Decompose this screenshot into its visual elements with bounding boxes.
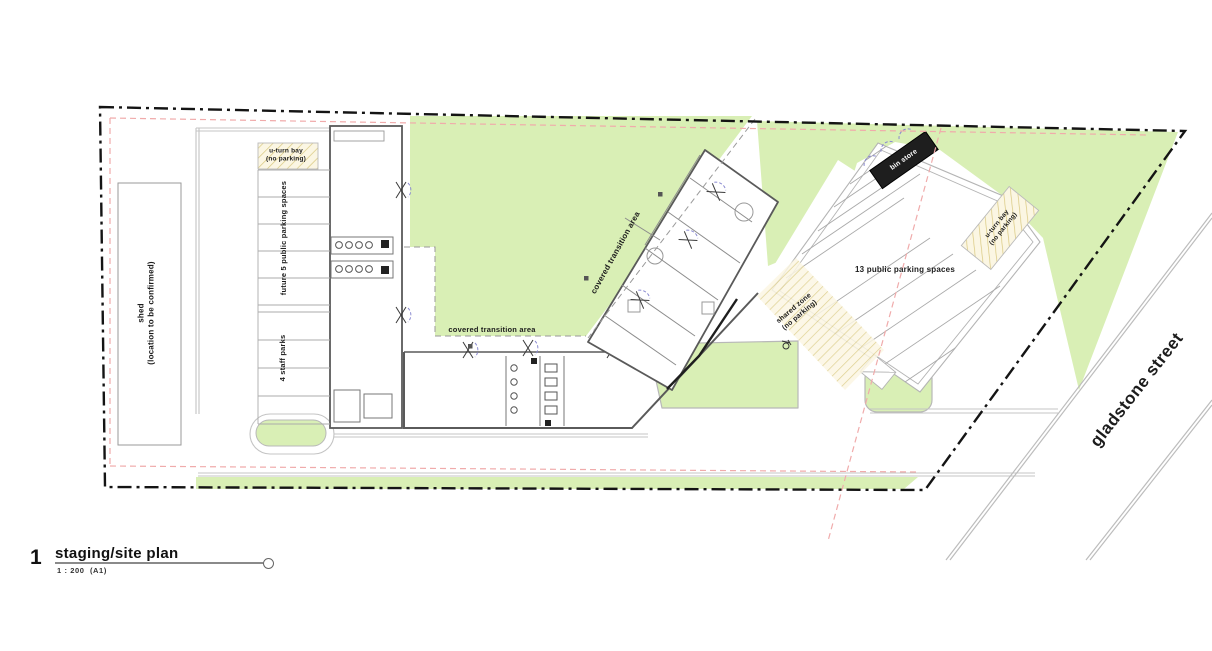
drawing-number: 1 (30, 546, 42, 570)
site-plan-drawing (0, 0, 1212, 651)
shed-label-line1: shed (137, 261, 147, 364)
public-parking-label: 13 public parking spaces (855, 265, 955, 275)
site-plan-canvas: shed (location to be confirmed) u-turn b… (0, 0, 1212, 651)
shed-label-line2: (location to be confirmed) (147, 261, 157, 364)
lawn-strip-bottom (196, 477, 918, 489)
west-building (330, 126, 411, 428)
shed-label: shed (location to be confirmed) (137, 261, 158, 364)
west-parking-bays (258, 170, 330, 424)
staff-parks-label: 4 staff parks (278, 335, 288, 382)
turning-head-island (250, 414, 334, 454)
title-end-circle (263, 558, 274, 569)
drawing-scale: 1 : 200 (A1) (57, 566, 107, 575)
covered-transition-label: covered transition area (448, 325, 535, 335)
uturn-bay-north-label: u-turn bay (no parking) (266, 148, 306, 165)
future-parking-label: future 5 public parking spaces (279, 181, 289, 295)
drawing-title: staging/site plan (55, 545, 178, 562)
title-underline (55, 562, 263, 564)
